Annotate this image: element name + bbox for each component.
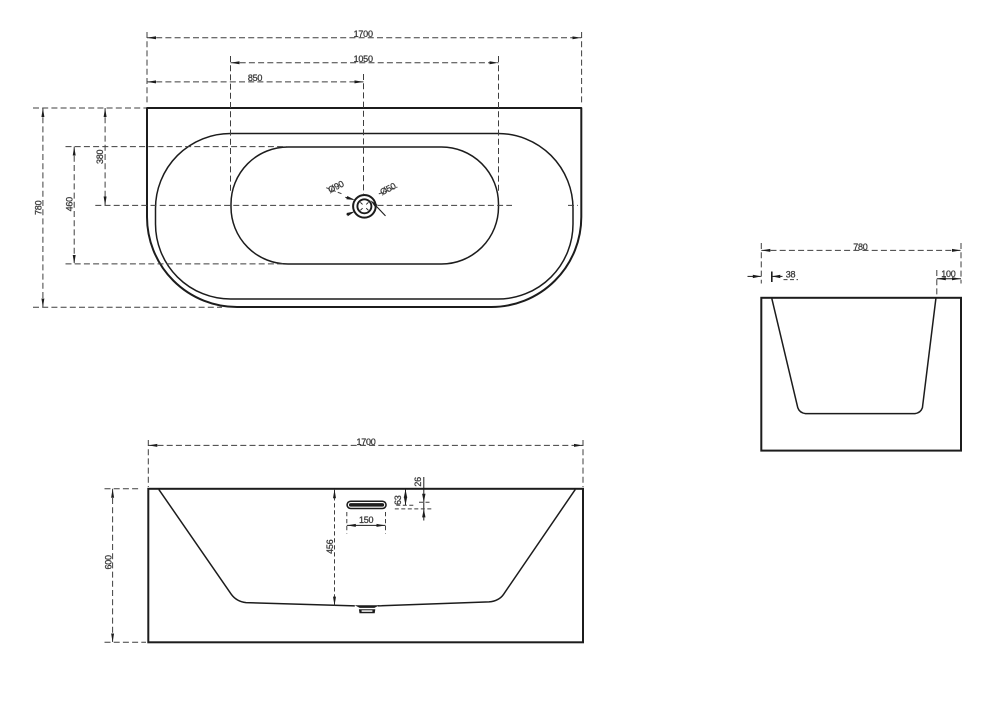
svg-text:780: 780 bbox=[853, 242, 868, 252]
svg-text:1700: 1700 bbox=[354, 29, 373, 39]
svg-text:150: 150 bbox=[359, 515, 374, 525]
svg-text:600: 600 bbox=[103, 555, 113, 570]
svg-text:26: 26 bbox=[413, 477, 423, 487]
svg-text:63: 63 bbox=[393, 495, 403, 505]
svg-text:850: 850 bbox=[248, 73, 263, 83]
svg-text:100: 100 bbox=[941, 269, 956, 279]
svg-text:780: 780 bbox=[34, 200, 44, 215]
svg-text:456: 456 bbox=[325, 539, 335, 554]
svg-text:1700: 1700 bbox=[356, 437, 375, 447]
svg-text:38: 38 bbox=[786, 270, 796, 280]
svg-text:1050: 1050 bbox=[354, 54, 373, 64]
svg-text:460: 460 bbox=[65, 197, 75, 212]
svg-text:380: 380 bbox=[95, 149, 105, 164]
